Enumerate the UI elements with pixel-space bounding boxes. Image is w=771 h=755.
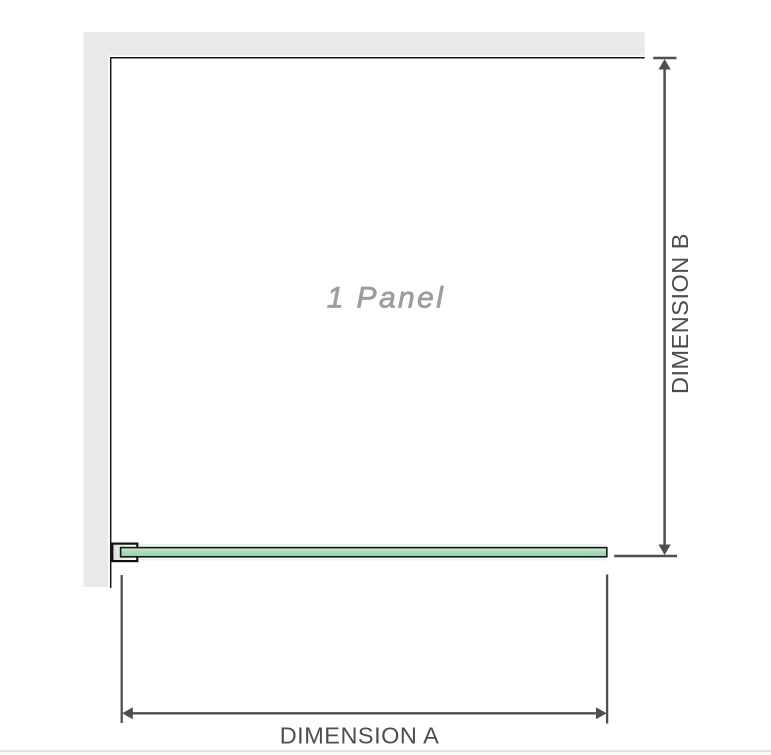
svg-text:1 Panel: 1 Panel [327,281,446,314]
svg-text:DIMENSION B: DIMENSION B [667,233,693,394]
svg-text:DIMENSION A: DIMENSION A [280,723,440,749]
